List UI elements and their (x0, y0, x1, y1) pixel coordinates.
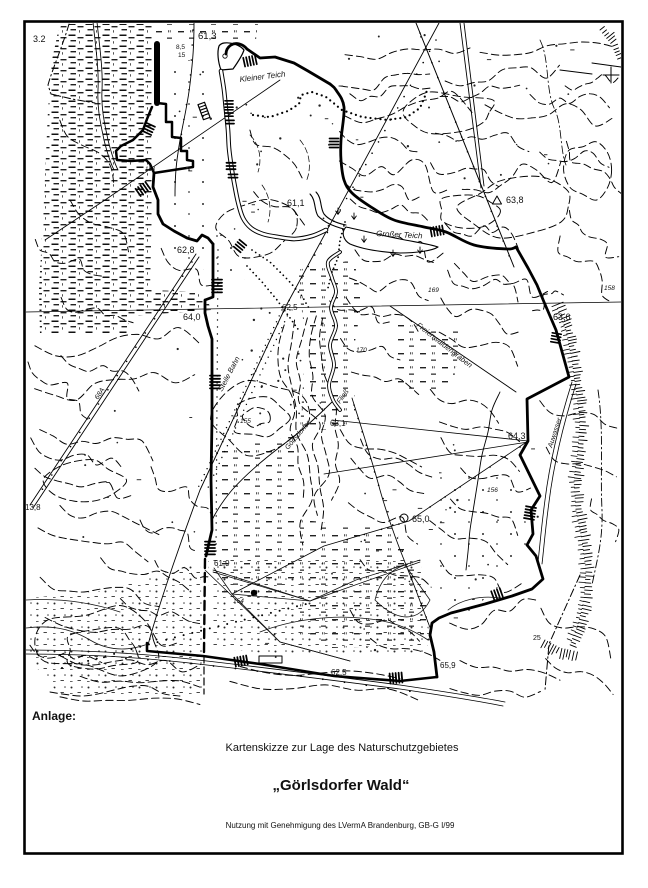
svg-text:158: 158 (604, 285, 615, 292)
svg-text:63,8: 63,8 (506, 195, 524, 205)
svg-text:64,3: 64,3 (508, 431, 526, 441)
svg-text:156: 156 (487, 487, 498, 494)
svg-text:„Görlsdorfer Wald“: „Görlsdorfer Wald“ (273, 777, 410, 794)
svg-text:154: 154 (233, 598, 244, 605)
svg-text:62,5: 62,5 (282, 303, 298, 312)
svg-text:8,5: 8,5 (176, 44, 185, 51)
svg-text:169: 169 (428, 287, 439, 294)
svg-text:Nutzung mit Genehmigung des LV: Nutzung mit Genehmigung des LVermA Brand… (226, 821, 455, 830)
svg-text:61,1: 61,1 (287, 198, 305, 208)
svg-text:63,6: 63,6 (553, 312, 571, 322)
svg-text:170: 170 (356, 347, 367, 354)
svg-text:61,3: 61,3 (198, 31, 217, 42)
svg-text:65,0: 65,0 (412, 514, 430, 524)
svg-text:62,8: 62,8 (177, 245, 195, 255)
svg-text:153: 153 (145, 167, 156, 173)
svg-text:3.2: 3.2 (33, 34, 46, 44)
svg-text:61,9: 61,9 (214, 559, 230, 568)
svg-text:155: 155 (240, 418, 251, 425)
svg-text:13,8: 13,8 (25, 503, 41, 512)
svg-text:Anlage:: Anlage: (32, 709, 76, 723)
svg-text:15: 15 (178, 52, 186, 59)
svg-text:65,9: 65,9 (440, 661, 456, 670)
svg-text:62,5: 62,5 (331, 668, 347, 677)
svg-text:64,0: 64,0 (183, 312, 201, 322)
svg-text:63,1: 63,1 (330, 419, 346, 428)
svg-text:25: 25 (533, 635, 541, 642)
svg-text:Kartenskizze zur Lage des Natu: Kartenskizze zur Lage des Naturschutzgeb… (226, 742, 459, 754)
